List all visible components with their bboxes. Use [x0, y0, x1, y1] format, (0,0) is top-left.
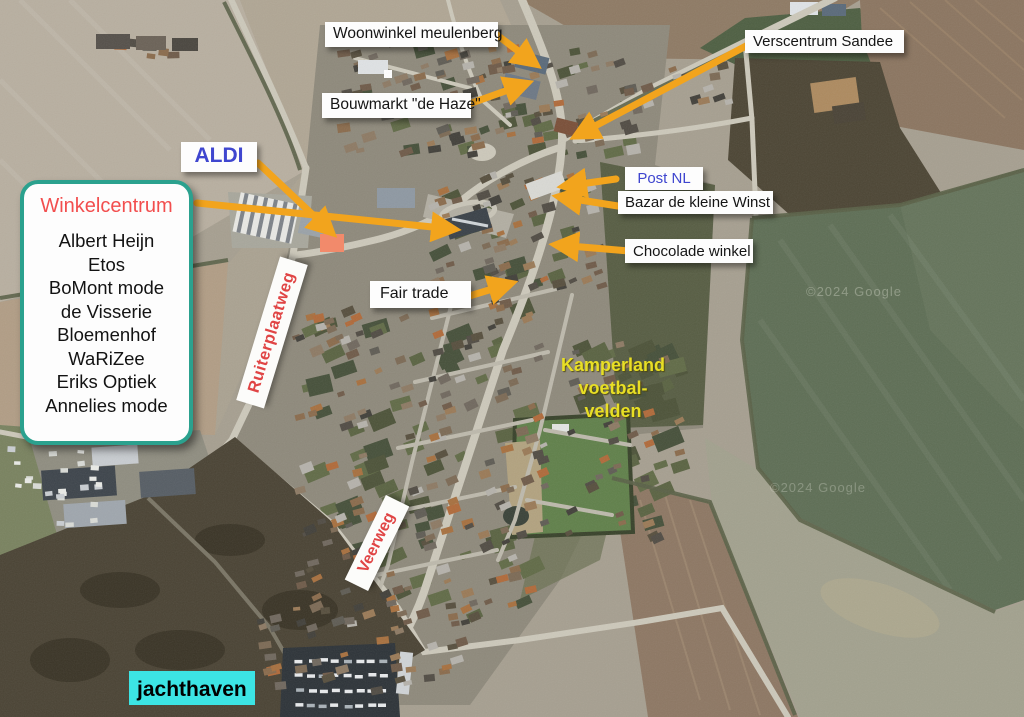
- winkelcentrum-callout: Winkelcentrum Albert Heijn Etos BoMont m…: [20, 180, 193, 445]
- shop-list-item: WaRiZee: [24, 347, 189, 371]
- label-verscentrum-sandee: Verscentrum Sandee: [745, 30, 904, 53]
- winkelcentrum-title: Winkelcentrum: [24, 195, 189, 218]
- shop-list-item: BoMont mode: [24, 276, 189, 300]
- label-woonwinkel-meulenberg: Woonwinkel meulenberg: [325, 22, 498, 47]
- label-bouwmarkt-de-haze: Bouwmarkt "de Haze": [322, 93, 471, 118]
- annotated-satellite-map: ©2024 Google ©2024 Google Woonwinkel meu…: [0, 0, 1024, 717]
- shop-list-item: Annelies mode: [24, 394, 189, 418]
- shop-list-item: Albert Heijn: [24, 229, 189, 253]
- google-watermark: ©2024 Google: [770, 480, 866, 495]
- label-jachthaven: jachthaven: [129, 671, 255, 705]
- shop-list-item: de Visserie: [24, 300, 189, 324]
- winkelcentrum-shop-list: Albert Heijn Etos BoMont mode de Visseri…: [24, 229, 189, 417]
- label-kamperland-voetbalvelden: Kamperland voetbal- velden: [556, 354, 670, 423]
- kamperland-line: Kamperland: [556, 354, 670, 377]
- google-watermark: ©2024 Google: [806, 284, 902, 299]
- label-fair-trade: Fair trade: [370, 281, 471, 308]
- label-chocolade-winkel: Chocolade winkel: [625, 239, 753, 263]
- label-bazar-de-kleine-winst: Bazar de kleine Winst: [618, 191, 773, 214]
- shop-list-item: Etos: [24, 253, 189, 277]
- shop-list-item: Bloemenhof: [24, 323, 189, 347]
- kamperland-line: velden: [556, 400, 670, 423]
- kamperland-line: voetbal-: [556, 377, 670, 400]
- shop-list-item: Eriks Optiek: [24, 370, 189, 394]
- label-post-nl: Post NL: [625, 167, 703, 190]
- label-aldi: ALDI: [181, 142, 257, 172]
